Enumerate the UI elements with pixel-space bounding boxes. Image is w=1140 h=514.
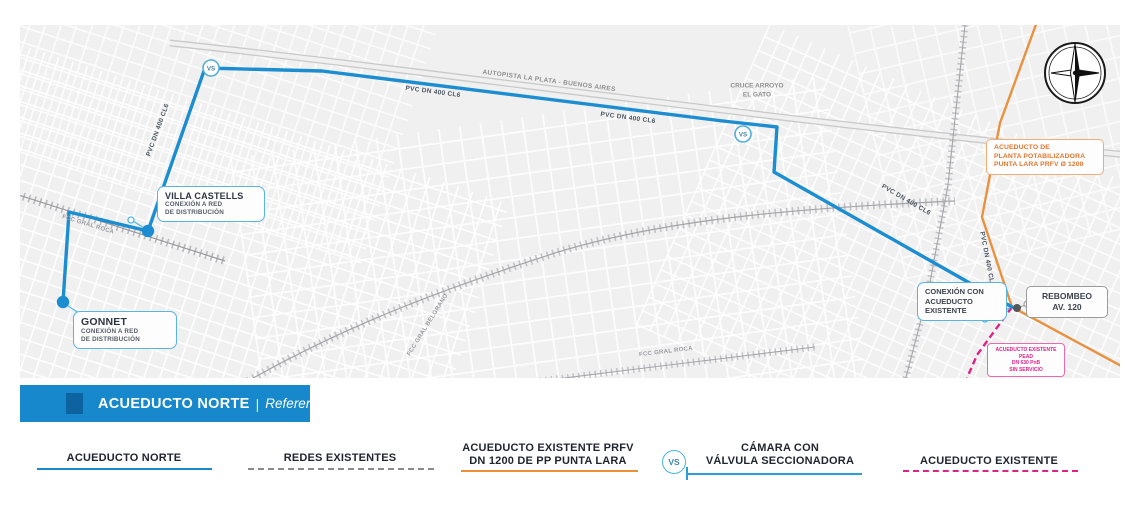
legend-line-redes-existentes (248, 468, 434, 470)
callout-planta-potabilizadora: ACUEDUCTO DE PLANTA POTABILIZADORA PUNTA… (986, 139, 1104, 175)
svg-text:VS: VS (207, 66, 215, 73)
dot-rebombeo-node (1013, 304, 1021, 312)
legend-line-acueducto-norte (37, 468, 212, 470)
banner-accent-square (66, 393, 83, 414)
legend-line-acueducto-existente (903, 470, 1078, 472)
railway-curve-center (248, 201, 955, 378)
callout-rebombeo: REBOMBEO AV. 120 (1026, 286, 1108, 318)
callout-conexion-existente: CONEXIÓN CON ACUEDUCTO EXISTENTE (917, 282, 1007, 321)
legend-label-acueducto-existente: ACUEDUCTO EXISTENTE (900, 455, 1078, 467)
vs-valve-icon-center: VS (735, 126, 751, 142)
gonnet-title: GONNET (81, 316, 169, 328)
callout-acueducto-pead: ACUEDUCTO EXISTENTE PEAD DN 630 PnB SIN … (987, 343, 1065, 377)
vs-valve-icon-northwest: VS (203, 60, 219, 76)
dot-villa-castells-connection (142, 225, 154, 237)
title-banner: ACUEDUCTO NORTE | Referencias (20, 385, 310, 422)
legend-label-acueducto-norte: ACUEDUCTO NORTE (35, 452, 213, 464)
acueducto-norte-map-page: VS VS PVC DN 400 CL6 PVC DN 400 CL6 PVC … (0, 0, 1140, 514)
map-area: VS VS PVC DN 400 CL6 PVC DN 400 CL6 PVC … (20, 25, 1120, 378)
legend-line-prfv (461, 470, 638, 472)
callout-villa-castells: VILLA CASTELLS CONEXIÓN A RED DE DISTRIB… (157, 186, 265, 222)
page-subtitle: Referencias (265, 396, 337, 411)
compass-rose-icon (1042, 40, 1108, 106)
villa-castells-title: VILLA CASTELLS (165, 191, 257, 201)
legend-label-redes-existentes: REDES EXISTENTES (246, 452, 434, 464)
legend-vs-valve-icon: VS (662, 450, 686, 474)
road-label-cruce-arroyo: CRUCE ARROYO EL GATO (730, 83, 783, 100)
callout-gonnet: GONNET CONEXIÓN A RED DE DISTRIBUCIÓN (73, 311, 177, 349)
page-title: ACUEDUCTO NORTE (98, 396, 250, 412)
banner-separator: | (256, 396, 260, 412)
dot-gonnet-connection (57, 296, 69, 308)
banner-text: ACUEDUCTO NORTE | Referencias (98, 385, 337, 422)
legend-line-camara (687, 473, 862, 475)
highway-autopista-inner (170, 43, 1120, 155)
svg-text:VS: VS (739, 132, 747, 139)
legend-label-camara: CÁMARA CON VÁLVULA SECCIONADORA (695, 442, 865, 467)
legend-label-prfv: ACUEDUCTO EXISTENTE PRFV DN 1200 DE PP P… (458, 442, 638, 467)
